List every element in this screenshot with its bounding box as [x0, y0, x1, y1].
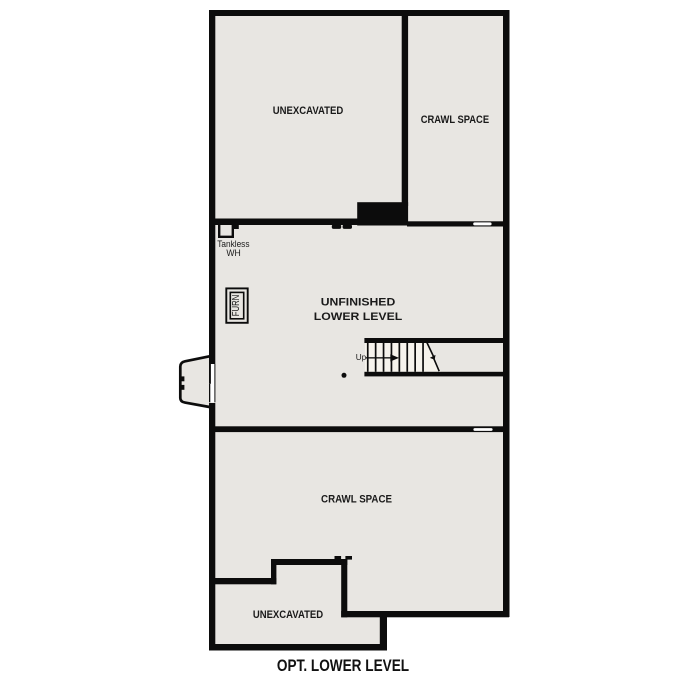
svg-text:CRAWL SPACE: CRAWL SPACE — [421, 114, 490, 126]
svg-text:CRAWL SPACE: CRAWL SPACE — [321, 494, 392, 506]
svg-text:OPT. LOWER LEVEL: OPT. LOWER LEVEL — [277, 657, 409, 675]
svg-text:FURN: FURN — [231, 295, 242, 317]
svg-text:UNEXCAVATED: UNEXCAVATED — [273, 105, 344, 117]
svg-text:UNEXCAVATED: UNEXCAVATED — [253, 609, 323, 621]
svg-text:UNFINISHED: UNFINISHED — [321, 297, 396, 309]
svg-text:LOWER LEVEL: LOWER LEVEL — [314, 311, 403, 323]
svg-text:Up: Up — [356, 352, 367, 362]
svg-text:WH: WH — [226, 248, 240, 258]
